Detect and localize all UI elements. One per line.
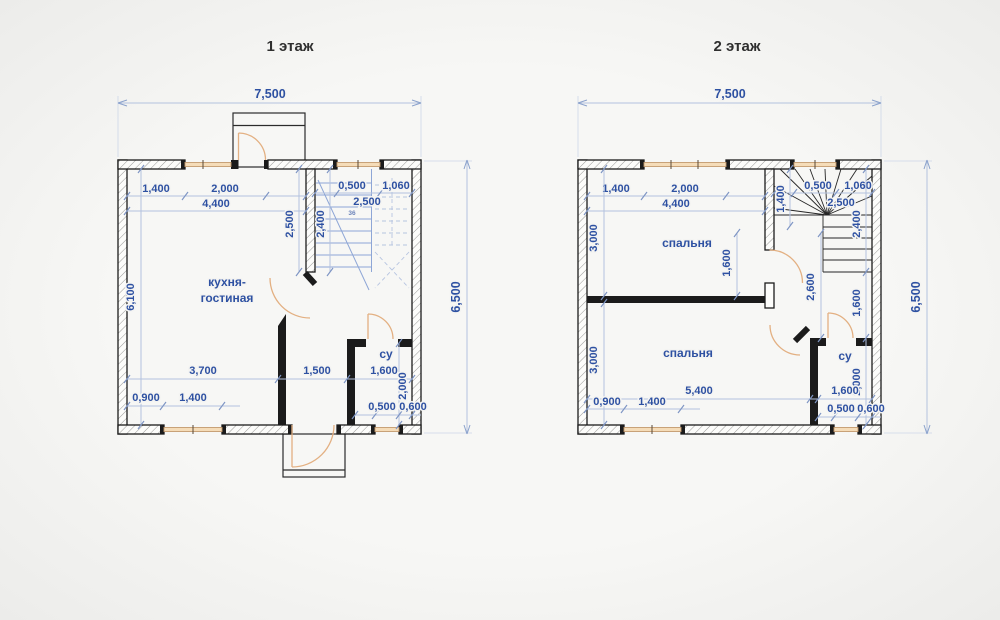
dim-f2-bedroom-door-offset: 1,600 <box>721 249 733 277</box>
dim-f2-top-total: 4,400 <box>662 198 690 210</box>
floor1-upper-flight-dashed <box>375 178 409 288</box>
dim-f2-landing-right: 1,600 <box>851 289 863 317</box>
dim-f1-left-height: 6,100 <box>125 283 137 311</box>
floor2-plan: 2 этаж <box>578 38 932 434</box>
dim-f1-stair-top1: 0,500 <box>338 180 366 192</box>
floor1-room-labels: кухня- гостиная су <box>201 275 393 361</box>
dim-f1-bottom1: 3,700 <box>189 365 217 377</box>
dim-f1-bl-offset: 0,900 <box>132 392 160 404</box>
dim-f2-stair-flight: 2,400 <box>851 210 863 238</box>
dim-f1-su-win-offset: 0,500 <box>368 401 396 413</box>
dim-f1-su-height: 2,000 <box>397 372 409 400</box>
dim-f2-bl-offset: 0,900 <box>593 396 621 408</box>
dim-f2-su-window: 0,600 <box>857 403 885 415</box>
floor1-stair-door <box>270 273 315 318</box>
dim-f1-bl-window: 1,400 <box>179 392 207 404</box>
floor1-vestibule <box>233 113 305 167</box>
dim-f2-stair-total: 2,500 <box>827 197 855 209</box>
floor2-bedroom2-door <box>770 325 808 355</box>
dim-f2-top1: 1,400 <box>602 183 630 195</box>
dim-f1-stair-flight: 2,400 <box>315 210 327 238</box>
floor2-title: 2 этаж <box>714 38 761 55</box>
room-label-f2-bathroom: су <box>838 349 852 363</box>
dim-f2-top2: 2,000 <box>671 183 699 195</box>
dim-f1-top2: 2,000 <box>211 183 239 195</box>
room-label-kitchen-line2: гостиная <box>201 291 254 305</box>
dim-f2-stair-top1: 0,500 <box>804 180 832 192</box>
floor1-bathroom-door <box>368 314 393 339</box>
dim-f2-overall-width: 7,500 <box>714 87 745 101</box>
floor2-bedroom1-door <box>770 250 803 283</box>
dim-f1-overall-height: 6,500 <box>449 281 463 312</box>
dim-f2-su-width: 1,600 <box>831 385 859 397</box>
room-label-bedroom-bottom: спальня <box>663 346 713 360</box>
dim-f1-su-window: 0,600 <box>399 401 427 413</box>
floor1-stair-note: 36 <box>348 210 356 217</box>
dim-f1-stair-total: 2,500 <box>353 196 381 208</box>
dim-f1-top-total: 4,400 <box>202 198 230 210</box>
dim-f2-bl-window: 1,400 <box>638 396 666 408</box>
dim-f2-stair-left-depth: 1,400 <box>775 185 787 213</box>
dim-f2-su-win-offset: 0,500 <box>827 403 855 415</box>
dim-f1-bottom3: 1,600 <box>370 365 398 377</box>
dim-f2-left-lower: 3,000 <box>588 346 600 374</box>
dim-f1-stair-top2: 1,060 <box>382 180 410 192</box>
dim-f1-stair-wall: 2,500 <box>284 210 296 238</box>
dim-f2-landing-height: 2,600 <box>805 273 817 301</box>
floor1-back-door <box>292 425 334 467</box>
floorplan-drawing: 1 этаж <box>0 0 1000 620</box>
floor1-entry-door <box>239 133 266 160</box>
floor2-bathroom-door <box>828 313 853 338</box>
dim-f2-bottom-total: 5,400 <box>685 385 713 397</box>
room-label-f1-bathroom: су <box>379 347 393 361</box>
floor1-title: 1 этаж <box>267 38 314 55</box>
dim-f1-overall-width: 7,500 <box>254 87 285 101</box>
floor1-plan: 1 этаж <box>118 38 472 477</box>
dim-f2-stair-top2: 1,060 <box>844 180 872 192</box>
dim-f2-left-upper: 3,000 <box>588 224 600 252</box>
dim-f1-top1: 1,400 <box>142 183 170 195</box>
dim-f2-overall-height: 6,500 <box>909 281 923 312</box>
room-label-kitchen-line1: кухня- <box>208 275 246 289</box>
room-label-bedroom-top: спальня <box>662 236 712 250</box>
dim-f1-bottom2: 1,500 <box>303 365 331 377</box>
